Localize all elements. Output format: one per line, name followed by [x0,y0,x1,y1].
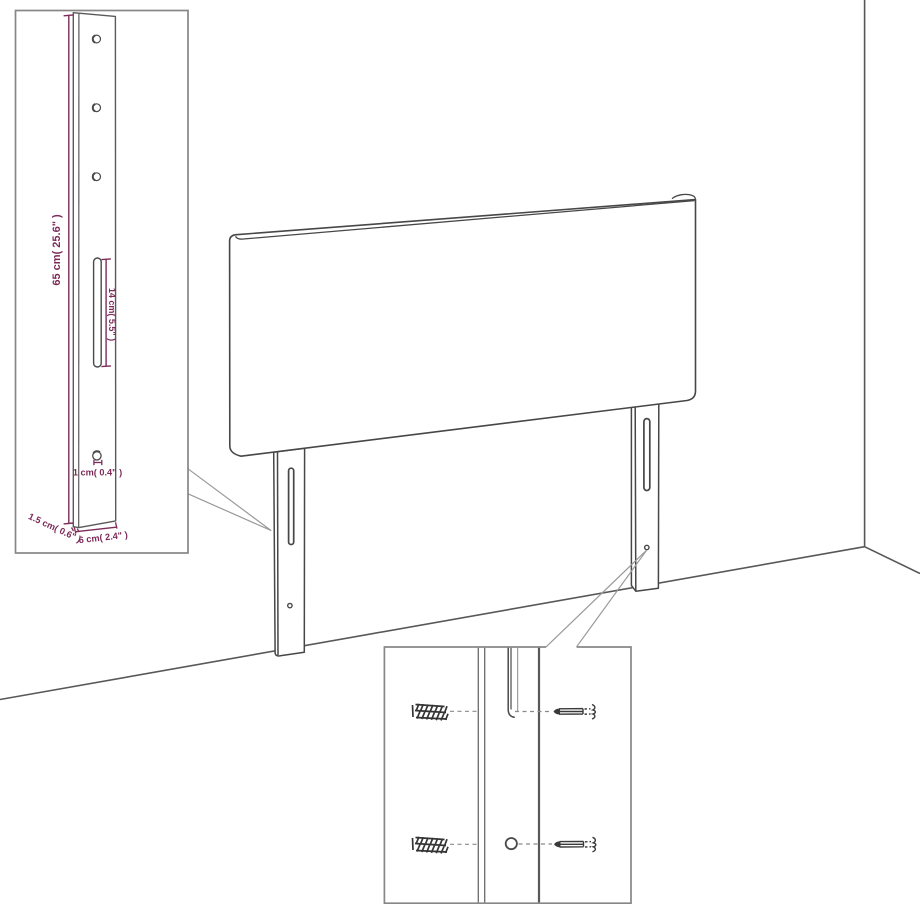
svg-text:65 cm( 25.6" ): 65 cm( 25.6" ) [51,214,63,286]
svg-text:14 cm( 5.5" ): 14 cm( 5.5" ) [107,288,117,341]
svg-text:1 cm( 0.4" ): 1 cm( 0.4" ) [73,468,122,478]
